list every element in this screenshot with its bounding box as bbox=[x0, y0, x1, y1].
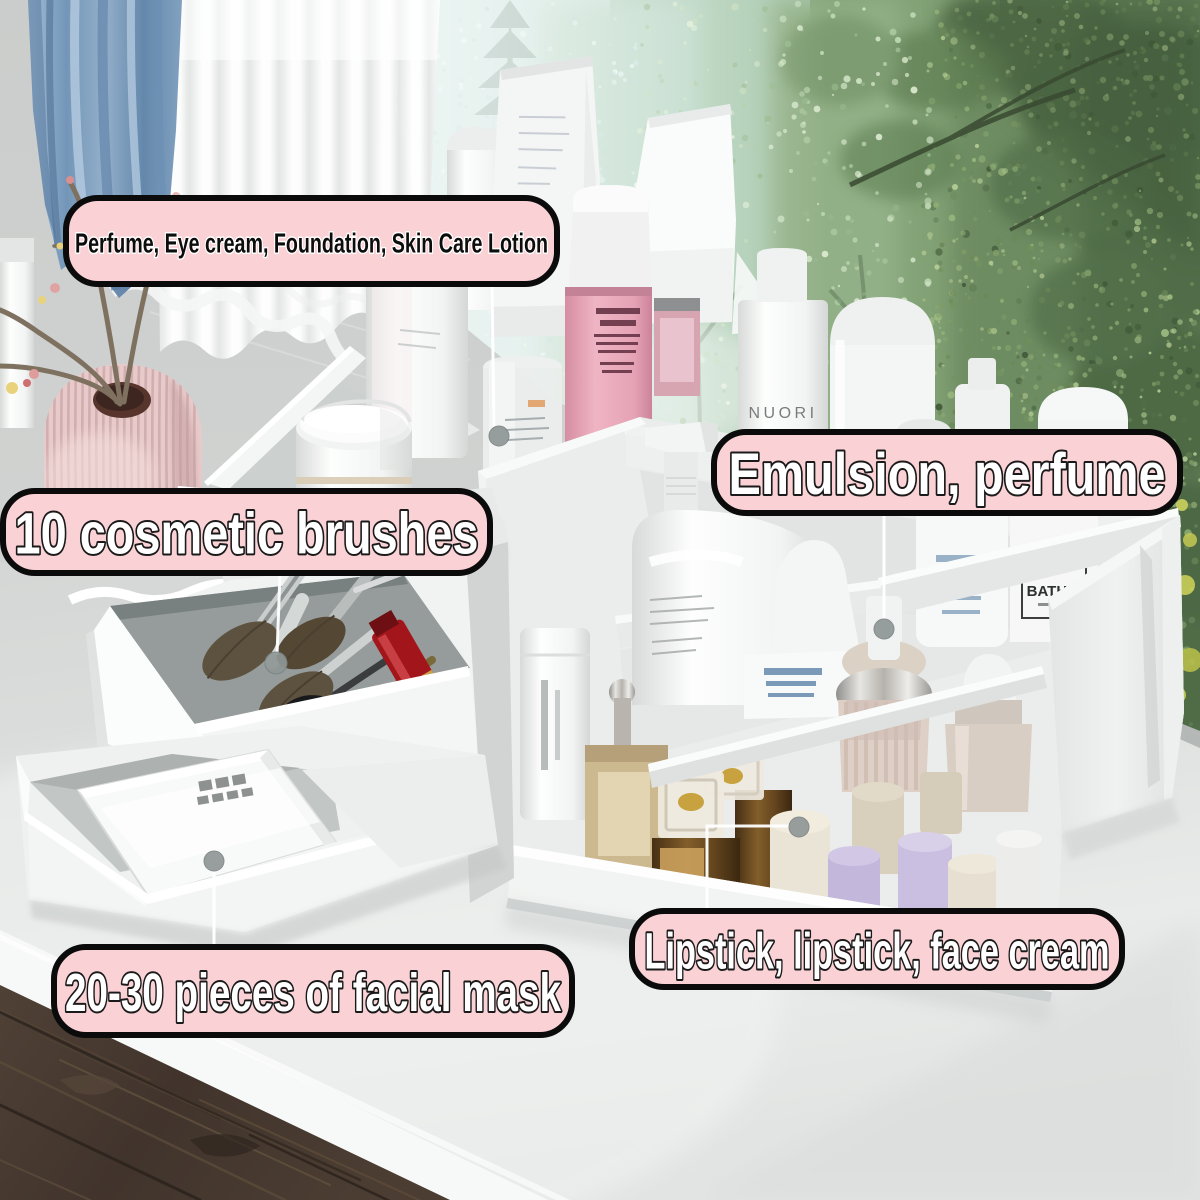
svg-text:Lipstick, lipstick, face cream: Lipstick, lipstick, face cream bbox=[645, 923, 1110, 980]
svg-text:Perfume, Eye cream, Foundation: Perfume, Eye cream, Foundation, Skin Car… bbox=[75, 228, 548, 259]
svg-text:NUORI: NUORI bbox=[748, 405, 817, 422]
svg-text:Emulsion, perfume: Emulsion, perfume bbox=[729, 442, 1166, 507]
svg-text:10 cosmetic brushes: 10 cosmetic brushes bbox=[15, 502, 479, 567]
svg-text:20-30 pieces of facial mask: 20-30 pieces of facial mask bbox=[65, 963, 562, 1023]
